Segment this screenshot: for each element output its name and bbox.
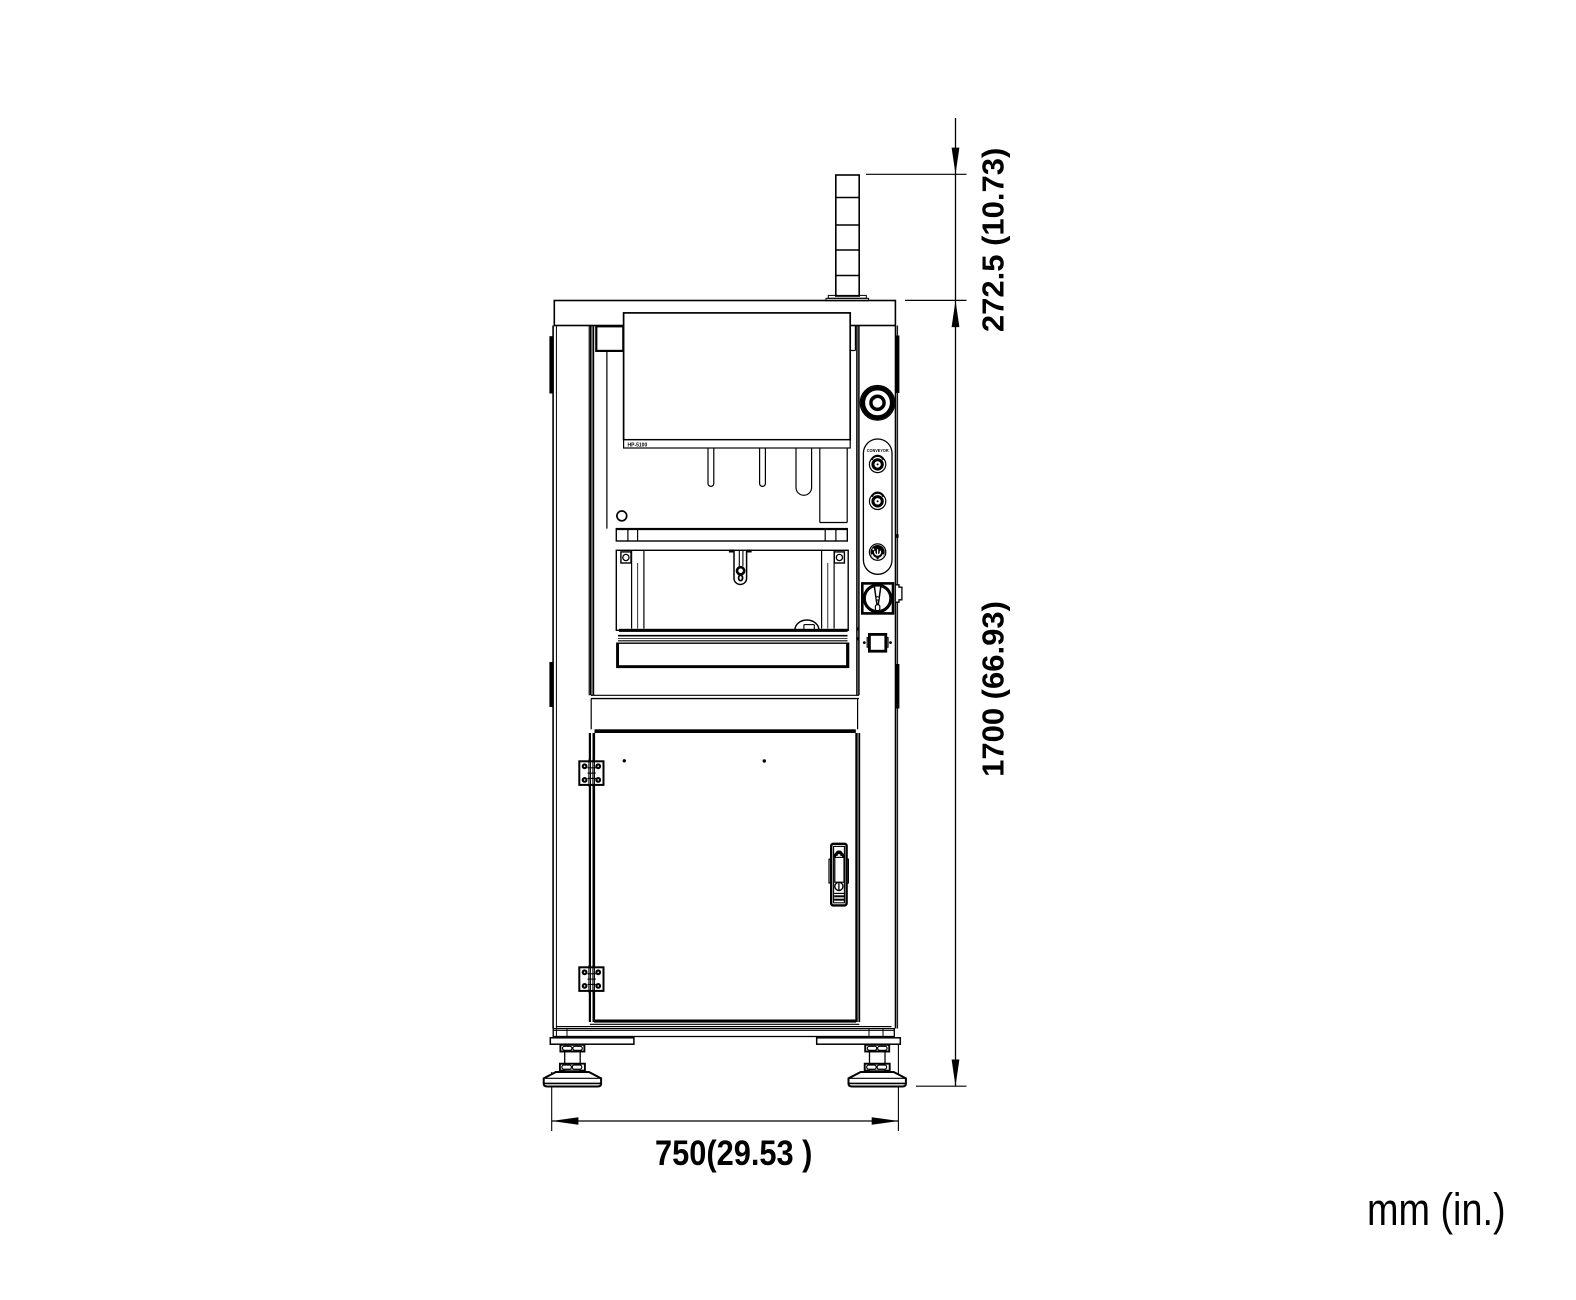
svg-text:CONVEYOR: CONVEYOR bbox=[867, 447, 890, 453]
svg-text:272.5 (10.73): 272.5 (10.73) bbox=[976, 148, 1011, 332]
svg-text:mm (in.): mm (in.) bbox=[1367, 1184, 1506, 1235]
svg-text:1700 (66.93): 1700 (66.93) bbox=[976, 601, 1011, 777]
svg-text:750(29.53 ): 750(29.53 ) bbox=[655, 1133, 812, 1172]
svg-text:HP-5100: HP-5100 bbox=[628, 443, 648, 449]
